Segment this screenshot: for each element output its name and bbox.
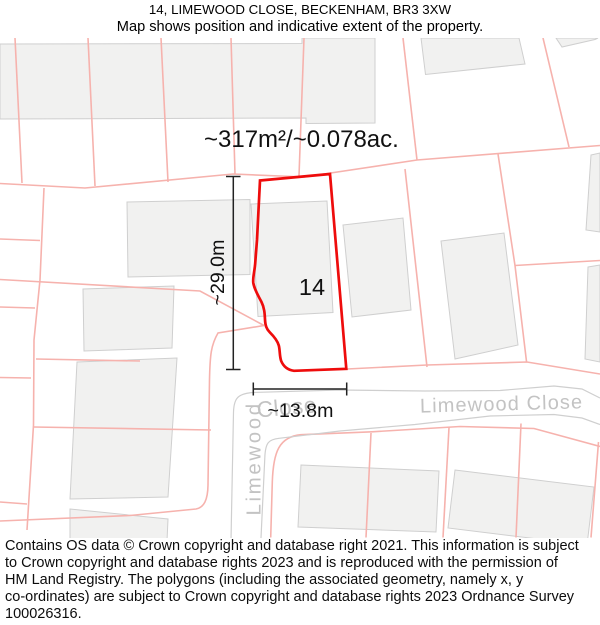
svg-text:Limewood Close: Limewood Close (420, 391, 584, 417)
svg-text:~13.8m: ~13.8m (268, 400, 334, 422)
svg-text:~317m²/~0.078ac.: ~317m²/~0.078ac. (204, 126, 399, 153)
svg-text:14: 14 (299, 274, 325, 300)
svg-text:~29.0m: ~29.0m (207, 240, 229, 306)
